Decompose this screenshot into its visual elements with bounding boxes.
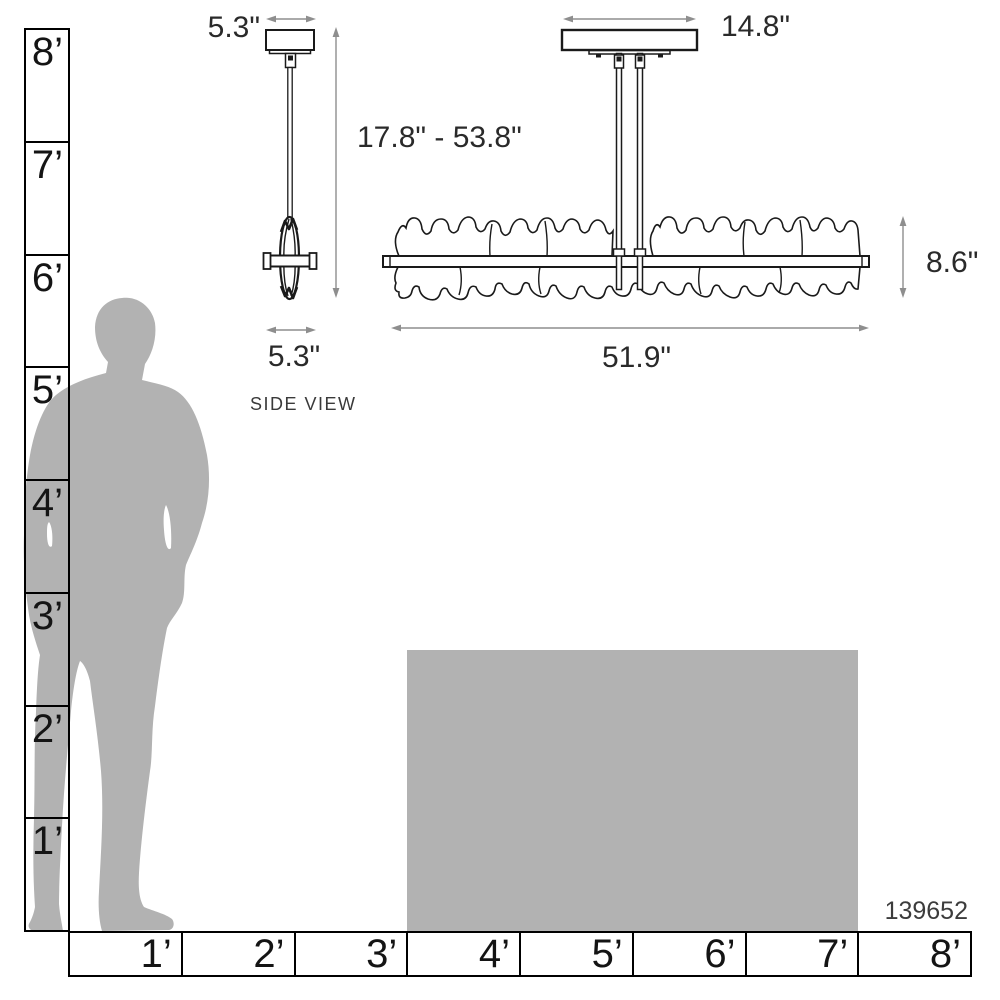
vruler-label: 5’ xyxy=(32,368,63,412)
vertical-scale-ruler: 8’ 7’ 6’ 5’ 4’ 3’ 2’ 1’ xyxy=(24,28,70,932)
side-fixture-width-label: 5.3" xyxy=(264,340,324,374)
vruler-cell: 4’ xyxy=(26,481,68,594)
hruler-cell: 6’ xyxy=(634,933,747,975)
hruler-cell: 1’ xyxy=(70,933,183,975)
vruler-cell: 6’ xyxy=(26,256,68,369)
glass-band-bottom xyxy=(395,267,860,300)
front-canopy xyxy=(562,30,697,50)
vruler-label: 6’ xyxy=(32,256,63,300)
front-canopy-width-label: 14.8" xyxy=(721,10,790,44)
side-stem-rod xyxy=(288,68,292,220)
vruler-label: 3’ xyxy=(32,594,63,638)
glass-band-top-right xyxy=(650,217,860,256)
front-bar xyxy=(383,256,869,267)
side-fixture-width-arrow xyxy=(266,327,316,334)
front-canopy-width-arrow xyxy=(563,16,696,23)
hruler-cell: 7’ xyxy=(747,933,860,975)
hruler-cell: 2’ xyxy=(183,933,296,975)
hruler-label: 8’ xyxy=(930,932,961,977)
dimension-diagram: 8’ 7’ 6’ 5’ 4’ 3’ 2’ 1’ 1’ 2’ 3’ 4’ 5’ 6… xyxy=(0,0,1000,1000)
side-bar-cap-right xyxy=(310,253,317,269)
front-fixture-width-arrow xyxy=(391,325,869,332)
side-height-arrow xyxy=(333,27,340,298)
hruler-label: 1’ xyxy=(141,932,172,977)
side-view-drawing xyxy=(264,30,317,299)
height-range-label: 17.8" - 53.8" xyxy=(357,121,522,155)
hruler-cell: 5’ xyxy=(521,933,634,975)
vruler-cell: 5’ xyxy=(26,368,68,481)
hruler-label: 5’ xyxy=(592,932,623,977)
vruler-cell: 2’ xyxy=(26,707,68,820)
glass-band-top-left xyxy=(395,217,613,256)
hruler-cell: 8’ xyxy=(859,933,970,975)
vruler-label: 1’ xyxy=(32,819,63,863)
hruler-label: 3’ xyxy=(366,932,397,977)
hruler-label: 6’ xyxy=(704,932,735,977)
vruler-label: 2’ xyxy=(32,707,63,751)
front-height-arrow xyxy=(900,216,907,298)
product-code: 139652 xyxy=(860,897,968,926)
hruler-label: 7’ xyxy=(817,932,848,977)
vruler-cell: 7’ xyxy=(26,143,68,256)
side-canopy xyxy=(266,30,314,50)
vruler-label: 7’ xyxy=(32,143,63,187)
vruler-label: 8’ xyxy=(32,30,63,74)
hruler-cell: 3’ xyxy=(296,933,409,975)
vruler-cell: 1’ xyxy=(26,819,68,930)
vruler-cell: 3’ xyxy=(26,594,68,707)
side-canopy-width-arrow xyxy=(266,16,316,23)
side-view-caption: SIDE VIEW xyxy=(250,394,357,415)
hruler-label: 2’ xyxy=(253,932,284,977)
front-fixture-width-label: 51.9" xyxy=(602,341,671,375)
front-view-drawing xyxy=(383,30,869,300)
hruler-cell: 4’ xyxy=(408,933,521,975)
front-canopy-lip xyxy=(589,51,670,55)
hruler-label: 4’ xyxy=(479,932,510,977)
side-bar xyxy=(265,256,315,267)
vruler-label: 4’ xyxy=(32,481,63,525)
vruler-cell: 8’ xyxy=(26,30,68,143)
side-bar-cap-left xyxy=(264,253,271,269)
horizontal-scale-ruler: 1’ 2’ 3’ 4’ 5’ 6’ 7’ 8’ xyxy=(68,931,972,977)
side-canopy-width-label: 5.3" xyxy=(198,11,260,45)
fixture-height-label: 8.6" xyxy=(926,246,978,280)
